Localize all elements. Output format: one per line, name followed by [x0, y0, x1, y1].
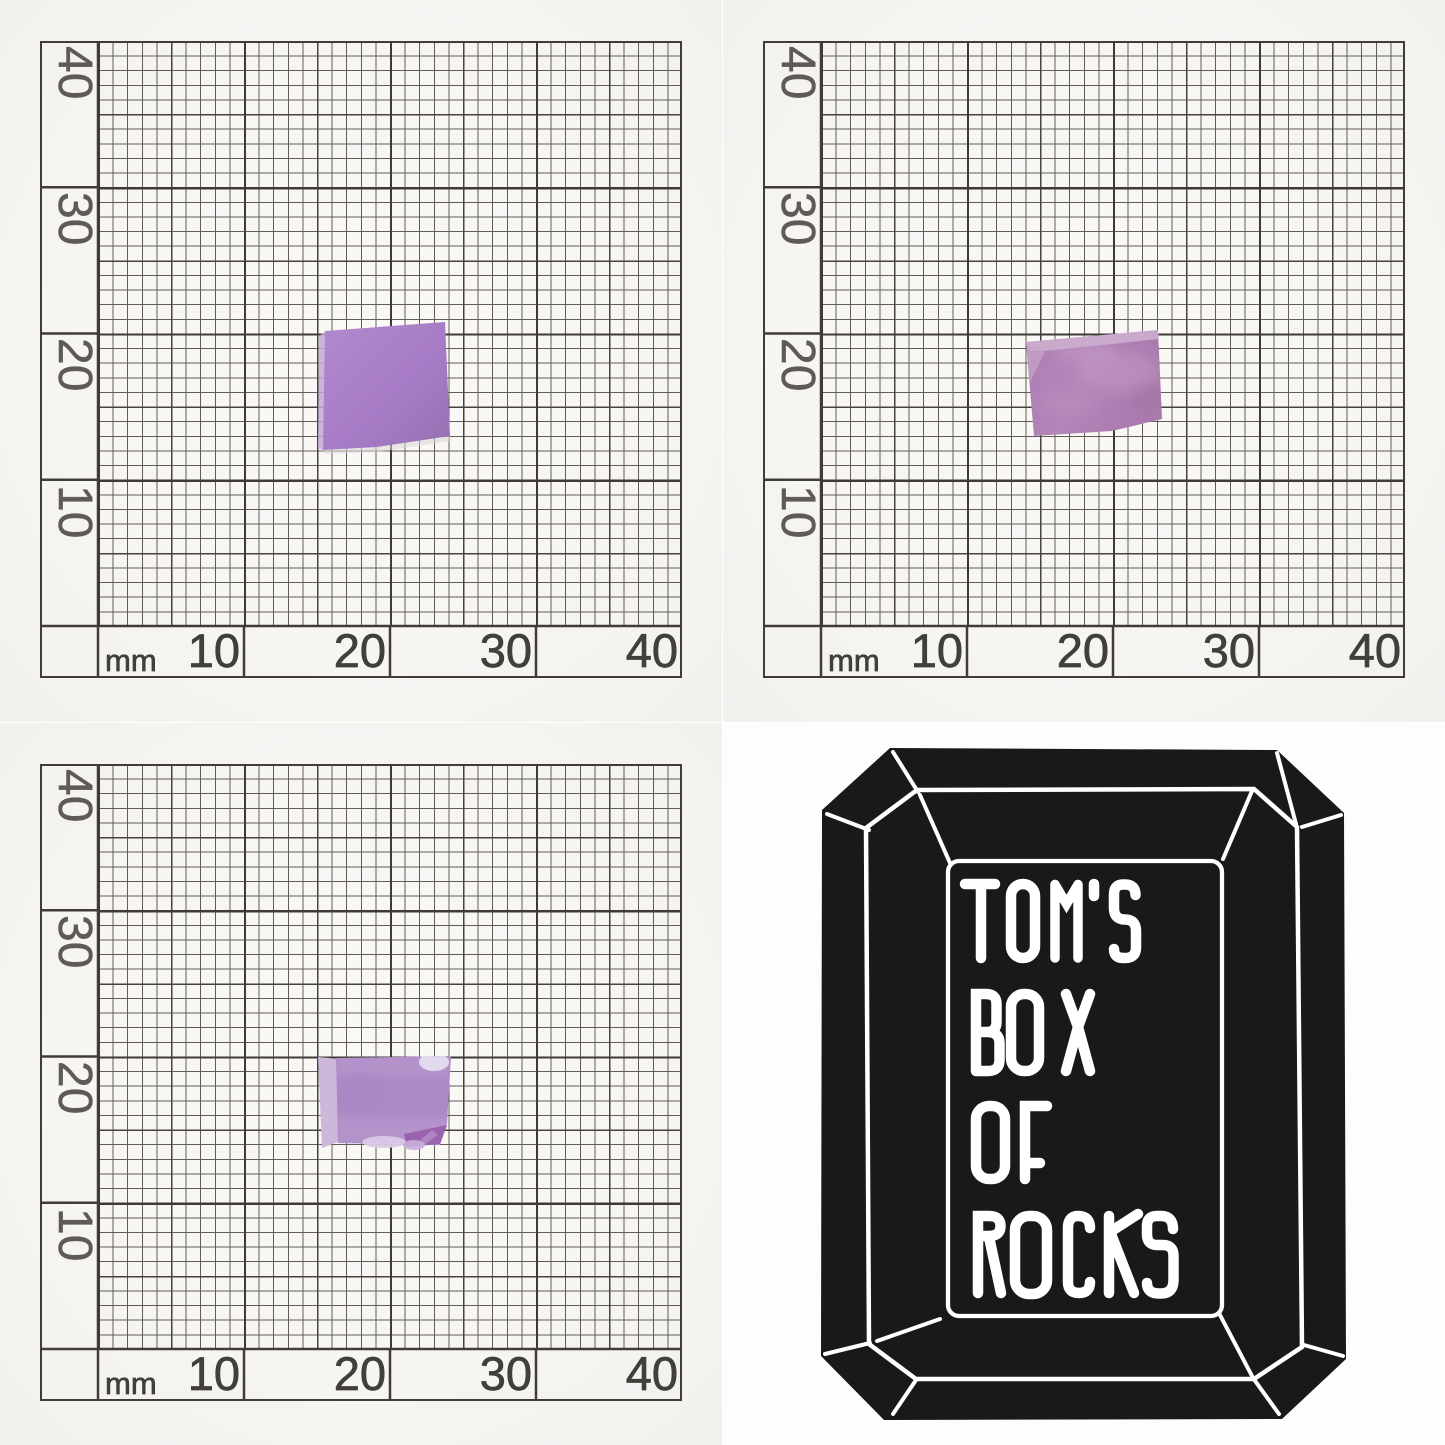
- svg-text:40: 40: [1349, 624, 1401, 677]
- svg-text:mm: mm: [828, 643, 880, 678]
- svg-text:20: 20: [771, 338, 824, 391]
- svg-text:20: 20: [48, 1061, 101, 1114]
- svg-text:10: 10: [188, 1347, 240, 1400]
- svg-text:40: 40: [48, 769, 101, 822]
- svg-text:40: 40: [626, 624, 678, 677]
- svg-text:mm: mm: [105, 1366, 157, 1401]
- svg-text:10: 10: [771, 485, 824, 538]
- svg-text:30: 30: [480, 1347, 532, 1400]
- svg-text:40: 40: [771, 46, 824, 99]
- svg-text:30: 30: [48, 915, 101, 968]
- svg-text:20: 20: [1057, 624, 1109, 677]
- svg-text:10: 10: [911, 624, 963, 677]
- svg-text:30: 30: [480, 624, 532, 677]
- svg-text:30: 30: [771, 192, 824, 245]
- svg-text:20: 20: [48, 338, 101, 391]
- svg-text:10: 10: [48, 1208, 101, 1261]
- svg-text:20: 20: [334, 1347, 386, 1400]
- svg-text:mm: mm: [105, 643, 157, 678]
- svg-text:40: 40: [48, 46, 101, 99]
- svg-text:10: 10: [48, 485, 101, 538]
- svg-text:30: 30: [48, 192, 101, 245]
- svg-text:30: 30: [1203, 624, 1255, 677]
- svg-text:20: 20: [334, 624, 386, 677]
- svg-text:10: 10: [188, 624, 240, 677]
- svg-text:40: 40: [626, 1347, 678, 1400]
